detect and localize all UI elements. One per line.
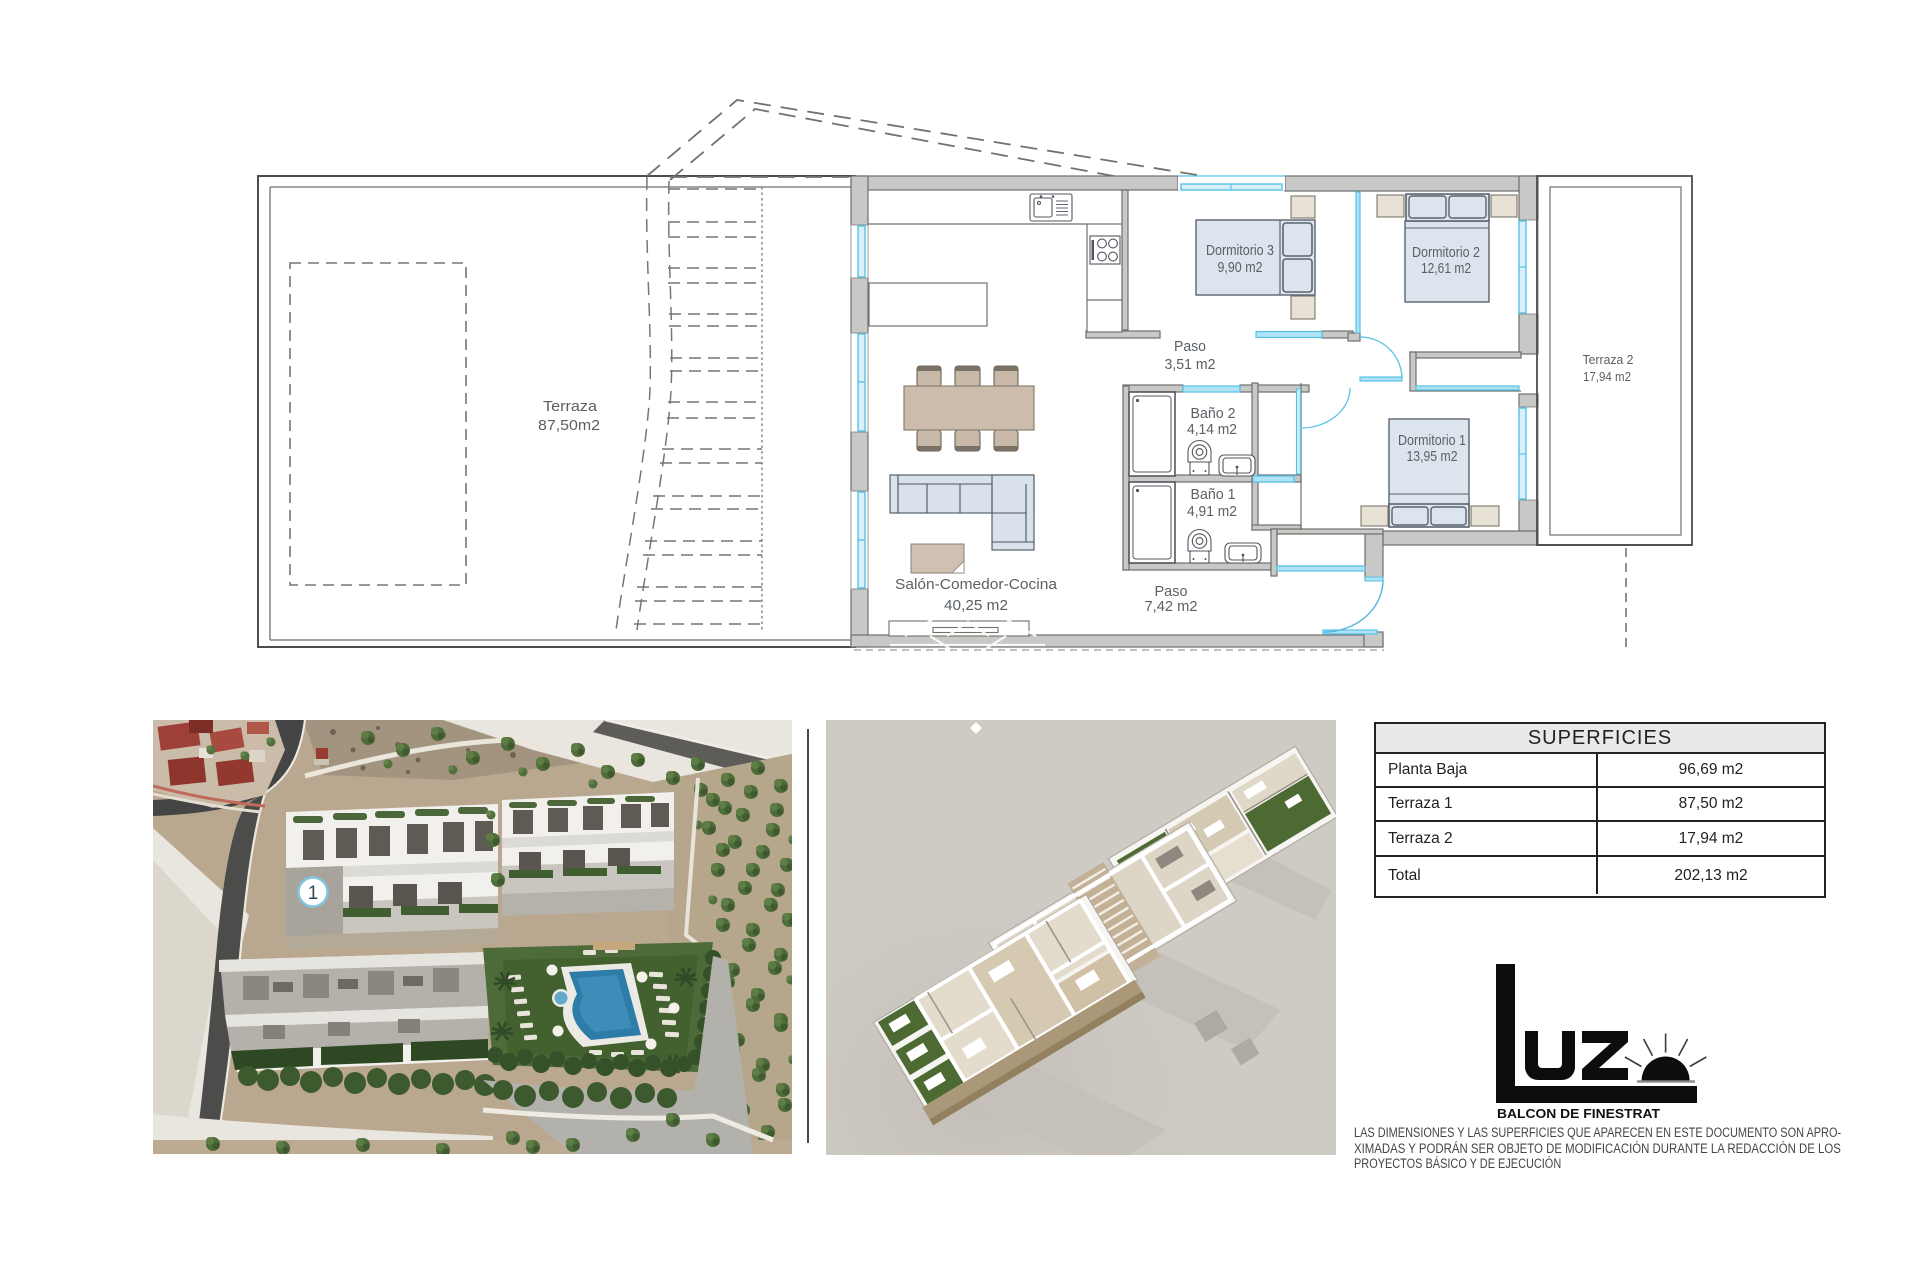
svg-text:3,51 m2: 3,51 m2 [1165,356,1216,373]
svg-text:12,61 m2: 12,61 m2 [1421,260,1471,277]
svg-text:Baño 2: Baño 2 [1191,405,1236,422]
svg-text:Paso: Paso [1174,338,1206,355]
svg-text:7,42 m2: 7,42 m2 [1145,598,1198,615]
svg-text:Dormitorio 1: Dormitorio 1 [1398,432,1466,449]
svg-text:1: 1 [308,883,319,904]
svg-text:Baño 1: Baño 1 [1191,486,1236,503]
svg-text:Salón-Comedor-Cocina: Salón-Comedor-Cocina [895,576,1058,593]
svg-text:BALCON DE FINESTRAT: BALCON DE FINESTRAT [1497,1106,1660,1121]
svg-text:87,50m2: 87,50m2 [538,417,600,434]
svg-text:Dormitorio 3: Dormitorio 3 [1206,242,1274,259]
svg-text:17,94 m2: 17,94 m2 [1583,369,1631,384]
svg-text:Dormitorio 2: Dormitorio 2 [1412,244,1480,261]
svg-text:Terraza: Terraza [543,398,598,415]
svg-text:Terraza 2: Terraza 2 [1583,352,1634,367]
svg-text:40,25 m2: 40,25 m2 [944,597,1008,614]
svg-text:9,90 m2: 9,90 m2 [1218,259,1263,276]
svg-text:4,14 m2: 4,14 m2 [1187,421,1237,438]
svg-text:13,95 m2: 13,95 m2 [1407,448,1458,465]
svg-text:4,91 m2: 4,91 m2 [1187,503,1237,520]
